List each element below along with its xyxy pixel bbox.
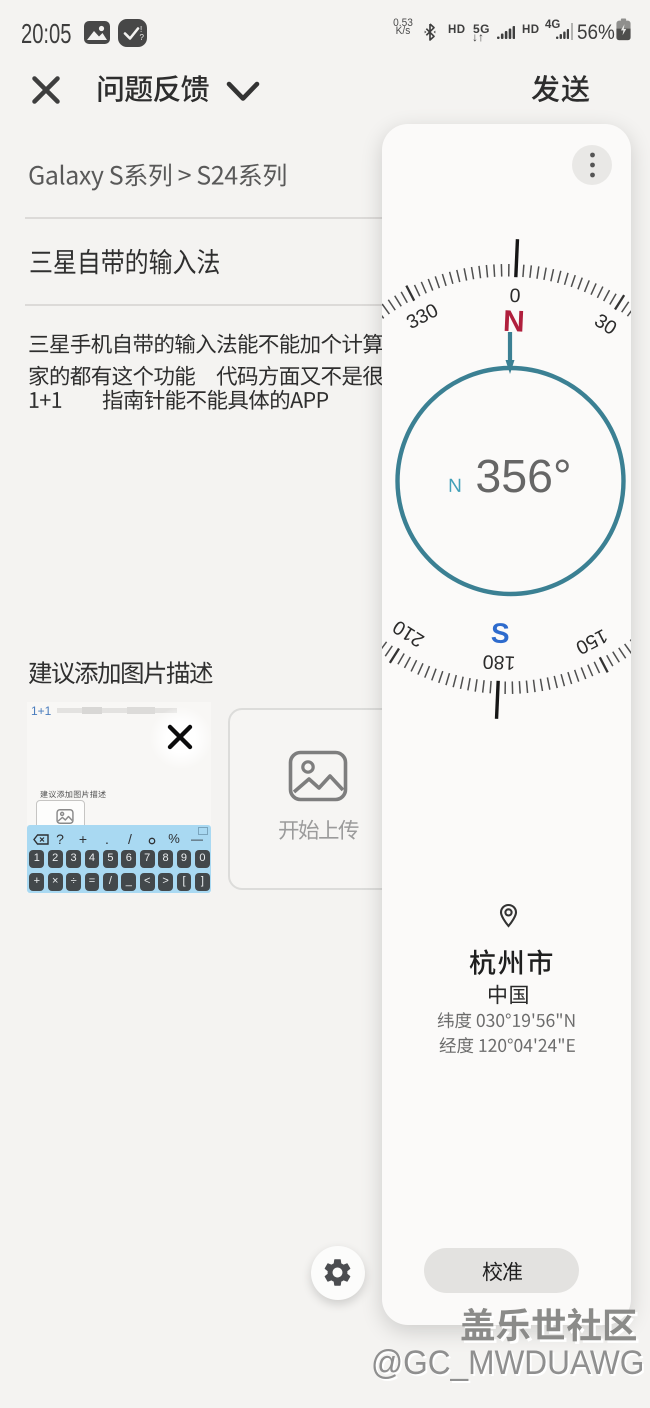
svg-text:?: ? <box>140 33 145 42</box>
